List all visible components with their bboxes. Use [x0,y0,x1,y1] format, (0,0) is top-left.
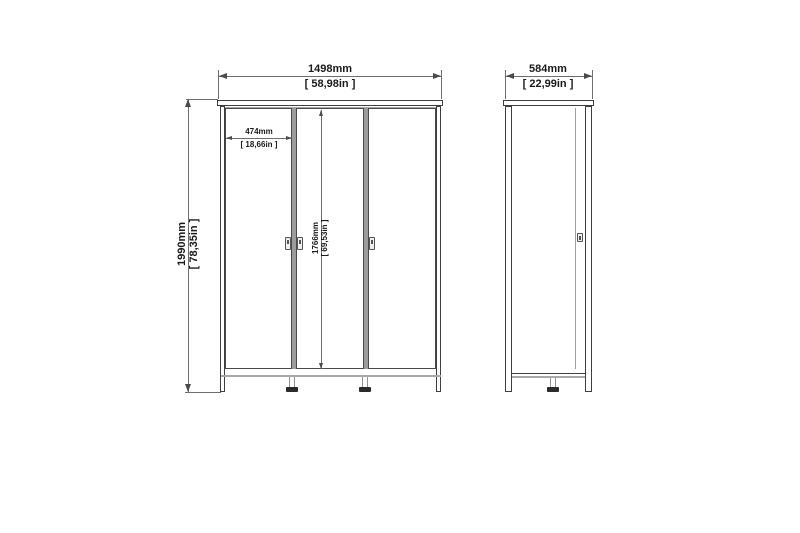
handle-pin [579,236,581,240]
foot-stem [550,378,556,387]
wardrobe-dimension-diagram: 1498mm [ 58,98in ] 1990mm [ 78,35in ] [0,0,800,533]
side-base-rail [512,376,585,378]
dim-side-depth-mm: 584mm [498,63,598,75]
side-adjustable-foot [547,387,559,392]
side-base-rail-top [512,373,585,374]
side-door-handle [577,233,583,242]
side-top-panel [503,100,594,106]
dimension-line [506,76,592,77]
side-view: 584mm [ 22,99in ] [0,0,800,533]
dim-side-depth-in: [ 22,99in ] [498,78,598,90]
back-edge-panel [505,106,512,392]
door-edge-line [575,108,576,369]
front-edge-panel [585,106,592,392]
